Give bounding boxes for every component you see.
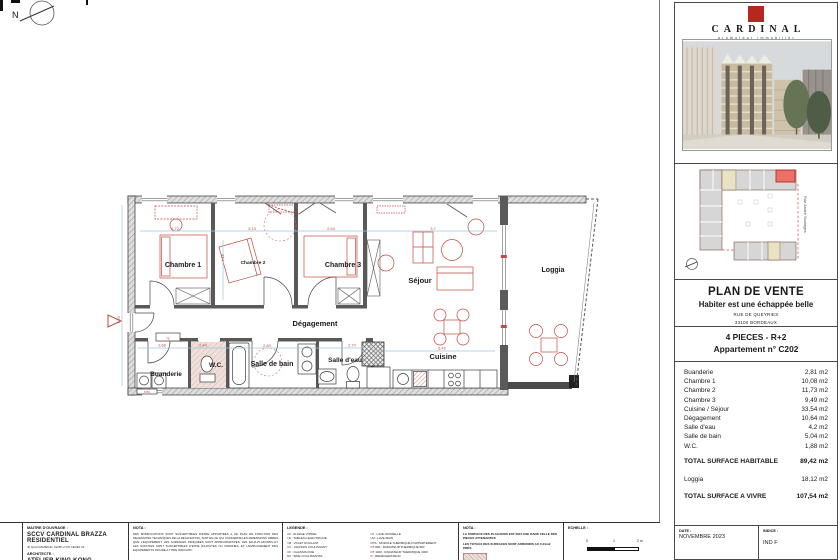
dim-label: 7,20 xyxy=(116,315,121,324)
room-label-wc: W.C. xyxy=(209,362,223,369)
room-label-cuisine: Cuisine xyxy=(429,352,456,361)
maitre-name: SCCV CARDINAL BRAZZA RESIDENTIEL xyxy=(27,532,124,544)
room-label-degagement: Dégagement xyxy=(292,319,338,328)
te-annotation: TE xyxy=(166,337,170,341)
table-row: Cuisine / Séjour33,54 m2 xyxy=(684,405,828,414)
nota-cell: NOTA : DES MODIFICATIONS SONT SUSCEPTIBL… xyxy=(129,523,282,560)
building-photo xyxy=(682,39,832,151)
table-row: Buanderie2,81 m2 xyxy=(684,368,828,377)
echelle-label: ECHELLE : xyxy=(568,526,655,530)
row-label: Cuisine / Séjour xyxy=(684,405,729,414)
loggia-row: Loggia18,12 m2 xyxy=(684,475,828,484)
legend-column-1: AV : ALLEGE VITREE TE : TABLEAU ELECTRIQ… xyxy=(287,532,371,560)
title-section: PLAN DE VENTE Habiter est une échappée b… xyxy=(675,279,837,326)
mta-annotation: MTA xyxy=(144,390,150,394)
table-row: Chambre 39,49 m2 xyxy=(684,396,828,405)
table-row: Chambre 110,08 m2 xyxy=(684,377,828,386)
row-label: Salle de bain xyxy=(684,432,721,441)
dim-label: 3,7 xyxy=(430,226,436,231)
duct-shaft xyxy=(362,342,384,366)
legende-cell: LEGENDE : AV : ALLEGE VITREE TE : TABLEA… xyxy=(283,523,458,560)
table-row: Salle d'eau4,2 m2 xyxy=(684,423,828,432)
date-indice-section: DATE : NOVEMBRE 2023 INDICE : IND F xyxy=(675,525,837,559)
legend-column-2: LV : LAVE-VAISSELLE LM : LAVE-MAIN MTA :… xyxy=(371,532,455,560)
row-value: 33,54 m2 xyxy=(801,405,828,414)
total-value: 89,42 m2 xyxy=(800,458,828,465)
nota2-line1: LA SURFACE DES PLACARDS EST INCLUSE DANS… xyxy=(463,532,558,541)
row-label: Chambre 3 xyxy=(684,396,716,405)
dim-label: 1,68 xyxy=(158,343,167,348)
indice-cell: INDICE : IND F xyxy=(759,526,837,559)
surface-table: Buanderie2,81 m2 Chambre 110,08 m2 Chamb… xyxy=(675,361,837,525)
dim-label: 4,15 xyxy=(220,253,225,262)
north-label: N xyxy=(12,10,19,20)
dim-label: 2,72 xyxy=(171,226,180,231)
placard-hatch-swatch xyxy=(463,553,487,560)
row-value: 10,64 m2 xyxy=(801,414,828,423)
table-row: W.C.1,88 m2 xyxy=(684,442,828,451)
street-label: Rue André Soulages xyxy=(803,196,808,233)
row-label: W.C. xyxy=(684,442,698,451)
title-block: MAITRE D'OUVRAGE : SCCV CARDINAL BRAZZA … xyxy=(0,522,660,560)
loggia-wall xyxy=(500,196,598,390)
cardinal-logo-square xyxy=(748,6,764,22)
apartment-number: Appartement n° C202 xyxy=(675,344,837,354)
nota-text: DES MODIFICATIONS SONT SUSCEPTIBLES D'ET… xyxy=(133,532,278,552)
row-value: 10,08 m2 xyxy=(801,377,828,386)
room-label-salle-de-bain: Salle de bain xyxy=(251,361,294,368)
address-line2: 33100 BORDEAUX xyxy=(675,320,837,325)
room-label-chambre1: Chambre 1 xyxy=(165,262,201,269)
row-value: 4,2 m2 xyxy=(808,423,828,432)
room-label-chambre3: Chambre 3 xyxy=(325,262,361,269)
address-line1: RUE DE QUEYRIES xyxy=(675,312,837,317)
closets xyxy=(176,240,380,304)
table-row: Dégagement10,64 m2 xyxy=(684,414,828,423)
legende-label: LEGENDE : xyxy=(287,526,454,530)
dim-label: 6,42 xyxy=(438,346,447,351)
row-value: 18,12 m2 xyxy=(801,475,828,484)
right-info-panel: CARDINAL promoteur immobilier xyxy=(674,2,838,560)
row-label: Loggia xyxy=(684,475,703,484)
total-value: 107,54 m2 xyxy=(796,493,828,500)
row-label: Salle d'eau xyxy=(684,423,715,432)
total-vivre-row: TOTAL SURFACE A VIVRE107,54 m2 xyxy=(684,493,828,500)
maitre-label: MAITRE D'OUVRAGE : xyxy=(27,526,124,530)
brand-section: CARDINAL promoteur immobilier xyxy=(675,3,837,163)
scale-bar xyxy=(587,547,639,551)
program-type: 4 PIECES - R+2 xyxy=(675,332,837,342)
nota-label: NOTA : xyxy=(133,526,278,530)
total-habitable-row: TOTAL SURFACE HABITABLE89,42 m2 xyxy=(684,458,828,465)
room-label-buanderie: Buanderie xyxy=(150,371,182,378)
row-label: Buanderie xyxy=(684,368,713,377)
row-label: Dégagement xyxy=(684,414,721,423)
apartment-section: 4 PIECES - R+2 Appartement n° C202 xyxy=(675,326,837,361)
date-cell: DATE : NOVEMBRE 2023 xyxy=(675,526,759,559)
date-value: NOVEMBRE 2023 xyxy=(679,534,754,540)
room-label-sejour: Séjour xyxy=(408,276,431,285)
floor-plan-drawing: N xyxy=(0,0,660,522)
row-label: Chambre 1 xyxy=(684,377,716,386)
date-label: DATE : xyxy=(679,529,754,533)
turning-circles xyxy=(254,209,296,376)
total-label: TOTAL SURFACE HABITABLE xyxy=(684,458,778,465)
table-row: Chambre 211,73 m2 xyxy=(684,386,828,395)
echelle-cell: ECHELLE : 0 1 2 m xyxy=(564,523,659,560)
dim-label: 2,44 xyxy=(199,343,208,348)
room-label-loggia: Loggia xyxy=(542,267,565,274)
north-arrow: N xyxy=(12,1,54,25)
indice-value: IND F xyxy=(763,540,833,546)
scale-tick-0: 0 xyxy=(586,539,588,543)
dim-label: 3,13 xyxy=(248,226,257,231)
site-plan-section: Rue André Soulages xyxy=(675,163,837,279)
row-value: 2,81 m2 xyxy=(805,368,828,377)
nota2-line2: LES TOTAUX DES SURFACES SONT ARRONDIS AU… xyxy=(463,542,558,551)
row-value: 9,49 m2 xyxy=(805,396,828,405)
row-value: 1,88 m2 xyxy=(805,442,828,451)
plan-subtitle: Habiter est une échappée belle xyxy=(675,300,837,309)
plan-title: PLAN DE VENTE xyxy=(675,286,837,298)
room-label-chambre2: Chambre 2 xyxy=(241,260,266,266)
brand-name: CARDINAL xyxy=(680,24,837,35)
nota2-cell: NOTA : LA SURFACE DES PLACARDS EST INCLU… xyxy=(459,523,562,560)
dim-label: 2,70 xyxy=(348,343,357,348)
room-label-salle-eau: Salle d'eau xyxy=(328,357,362,364)
row-label: Chambre 2 xyxy=(684,386,716,395)
scale-tick-2: 2 m xyxy=(637,539,643,543)
row-value: 5,04 m2 xyxy=(805,432,828,441)
indice-label: INDICE : xyxy=(763,529,833,533)
siteplan-north-arrow xyxy=(685,259,698,270)
highlighted-unit xyxy=(776,170,795,182)
plan-de-vente-sheet: N xyxy=(0,0,840,560)
architecte-label: ARCHITECTE : xyxy=(27,552,124,556)
row-value: 11,73 m2 xyxy=(802,386,828,395)
total-label: TOTAL SURFACE A VIVRE xyxy=(684,493,766,500)
scale-tick-1: 1 xyxy=(613,539,615,543)
nota2-label: NOTA : xyxy=(463,526,558,530)
maitre-douvrage-cell: MAITRE D'OUVRAGE : SCCV CARDINAL BRAZZA … xyxy=(23,523,128,560)
maitre-address: 40 QUAI RAMBAUD, 69286 LYON CEDEX 02 xyxy=(27,545,124,549)
dim-label: 2,54 xyxy=(327,226,336,231)
dim-label: 2,80 xyxy=(263,343,272,348)
table-row: Salle de bain5,04 m2 xyxy=(684,432,828,441)
